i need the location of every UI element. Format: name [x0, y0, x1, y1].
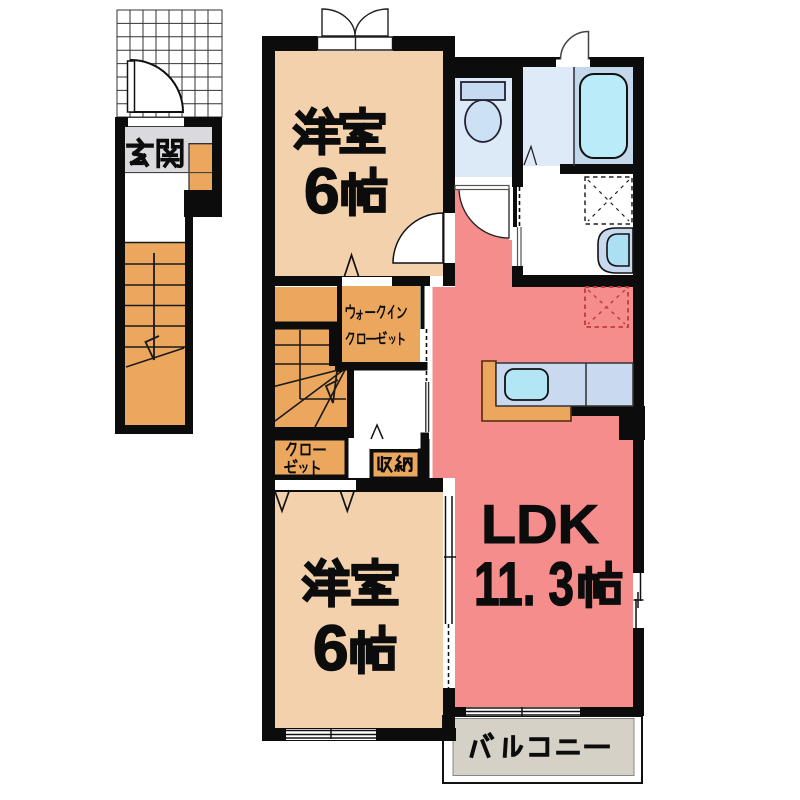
svg-text:11. 3: 11. 3: [474, 550, 574, 618]
svg-text:6: 6: [304, 155, 340, 227]
svg-text:6: 6: [313, 612, 349, 684]
svg-text:LDK: LDK: [481, 493, 599, 555]
